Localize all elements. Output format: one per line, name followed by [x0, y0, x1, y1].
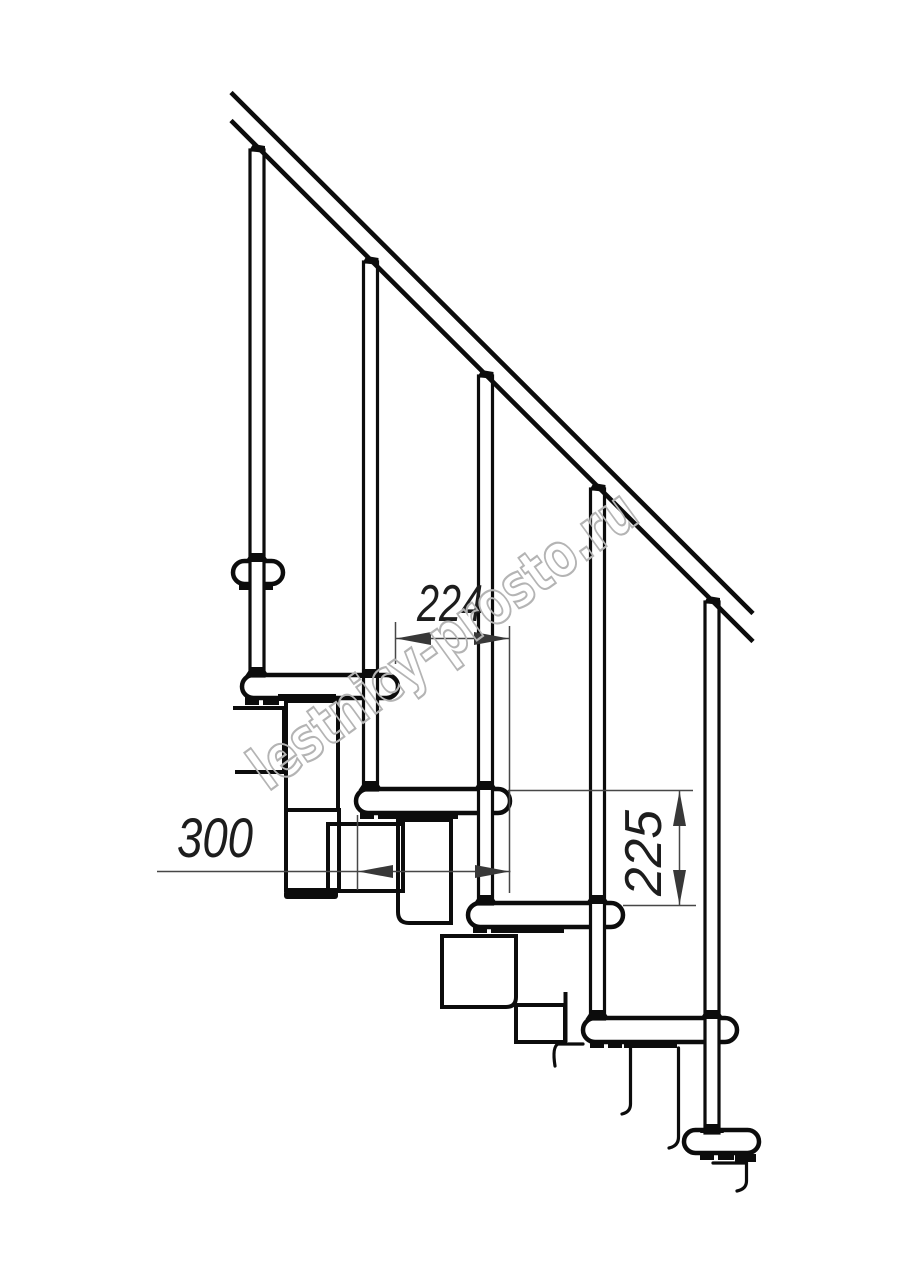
watermark: lestnicy-prosto.ru: [236, 476, 651, 804]
baluster-1: [250, 150, 264, 676]
staircase-drawing-svg: 224 300 225 lestnicy-prosto.ru: [0, 0, 914, 1280]
staircase-drawing: 224 300 225 lestnicy-prosto.ru: [0, 0, 914, 1280]
watermark-text: lestnicy-prosto.ru: [236, 476, 651, 804]
dimension-depth-label: 300: [177, 806, 253, 869]
arrow-down: [673, 870, 686, 905]
baluster-5: [705, 602, 719, 1133]
tread-6: [684, 1130, 759, 1153]
arrow-up: [673, 791, 686, 826]
dimension-rise-label: 225: [615, 809, 673, 897]
